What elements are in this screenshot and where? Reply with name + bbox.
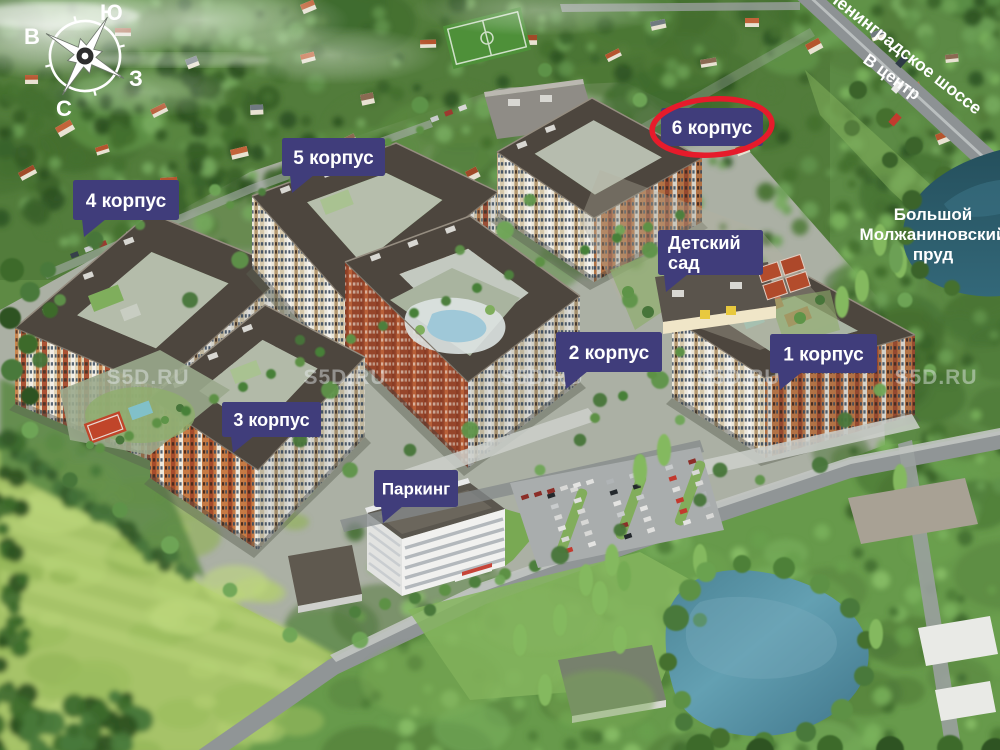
svg-text:1 корпус: 1 корпус — [783, 344, 864, 365]
svg-text:Большой: Большой — [894, 205, 972, 224]
svg-text:пруд: пруд — [913, 245, 953, 264]
svg-text:Детский: Детский — [668, 233, 741, 253]
svg-text:5 корпус: 5 корпус — [293, 148, 374, 169]
svg-text:6 корпус: 6 корпус — [672, 118, 753, 139]
svg-text:S5D.RU: S5D.RU — [106, 366, 189, 389]
svg-text:S5D.RU: S5D.RU — [697, 366, 780, 389]
svg-text:З: З — [129, 66, 143, 91]
svg-text:Паркинг: Паркинг — [382, 480, 450, 499]
svg-text:Ю: Ю — [100, 0, 123, 25]
svg-text:2 корпус: 2 корпус — [569, 343, 650, 364]
svg-text:3 корпус: 3 корпус — [233, 410, 309, 430]
svg-text:сад: сад — [668, 253, 700, 273]
svg-text:S5D.RU: S5D.RU — [894, 366, 977, 389]
svg-text:4 корпус: 4 корпус — [86, 191, 167, 212]
svg-text:S5D.RU: S5D.RU — [303, 366, 386, 389]
svg-text:Молжаниновский: Молжаниновский — [860, 225, 1000, 244]
svg-text:В: В — [24, 24, 40, 49]
svg-text:С: С — [56, 96, 72, 121]
